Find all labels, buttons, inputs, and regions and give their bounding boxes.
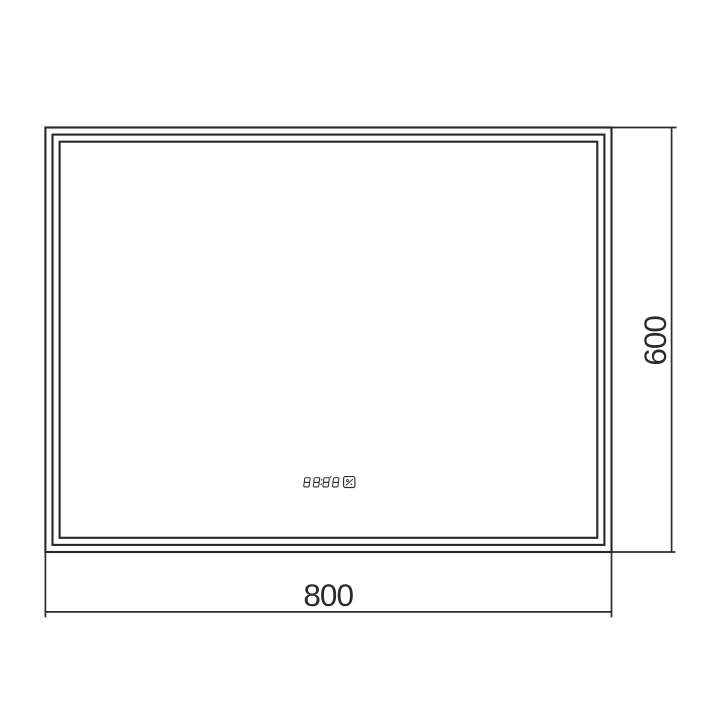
svg-text:600: 600 xyxy=(637,316,673,366)
svg-text:800: 800 xyxy=(303,577,353,613)
